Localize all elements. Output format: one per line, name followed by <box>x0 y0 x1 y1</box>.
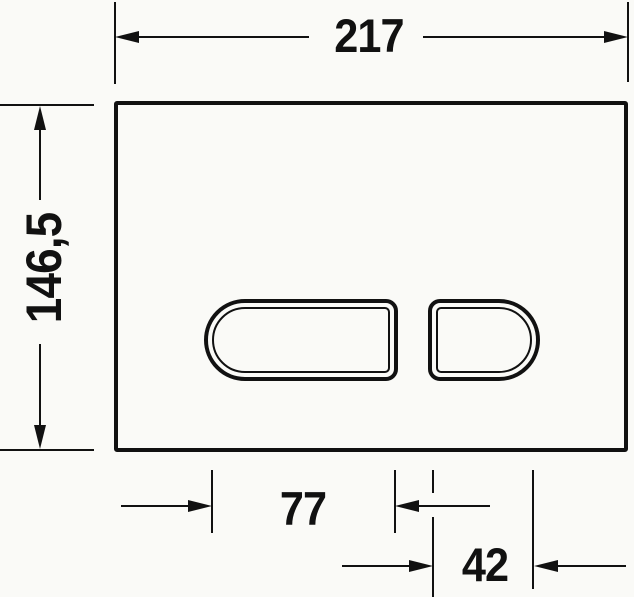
small-button-dim-tail-right <box>556 565 626 567</box>
large-button-dim-label: 77 <box>257 485 349 532</box>
height-dim-arrowhead-top-icon <box>34 106 46 130</box>
large-flush-button <box>204 299 398 381</box>
height-dim-arrowhead-bottom-icon <box>34 425 46 449</box>
width-dim-label: 217 <box>300 12 438 59</box>
large-button-dim-arrowhead-right-icon <box>395 500 419 512</box>
large-button-dim-arrowhead-left-icon <box>188 500 212 512</box>
small-flush-button-inner-contour <box>436 307 532 373</box>
width-dim-line-left-segment <box>137 36 309 38</box>
small-button-dim-label: 42 <box>439 541 531 588</box>
small-button-dim-arrowhead-right-icon <box>534 560 558 572</box>
large-button-dim-tail-right <box>417 505 490 507</box>
small-button-dim-extension-line-left-lower <box>432 517 434 597</box>
width-dim-arrowhead-left-icon <box>115 31 139 43</box>
width-dim-extension-line-left <box>114 2 116 84</box>
width-dim-arrowhead-right-icon <box>604 31 628 43</box>
small-button-dim-extension-line-left-upper <box>432 470 434 493</box>
dimension-drawing: 217 146,5 77 42 <box>0 0 634 597</box>
height-dim-extension-line-bottom <box>0 449 94 451</box>
large-flush-button-inner-contour <box>212 307 390 373</box>
small-flush-button <box>428 299 540 381</box>
small-button-dim-tail-left <box>342 565 411 567</box>
large-button-dim-tail-left <box>121 505 190 507</box>
height-dim-extension-line-top <box>0 104 94 106</box>
small-button-dim-arrowhead-left-icon <box>409 560 433 572</box>
height-dim-label: 146,5 <box>14 158 74 379</box>
height-dim-line-bottom-segment <box>39 344 41 426</box>
flush-plate-outline <box>114 101 628 452</box>
width-dim-line-right-segment <box>423 36 606 38</box>
